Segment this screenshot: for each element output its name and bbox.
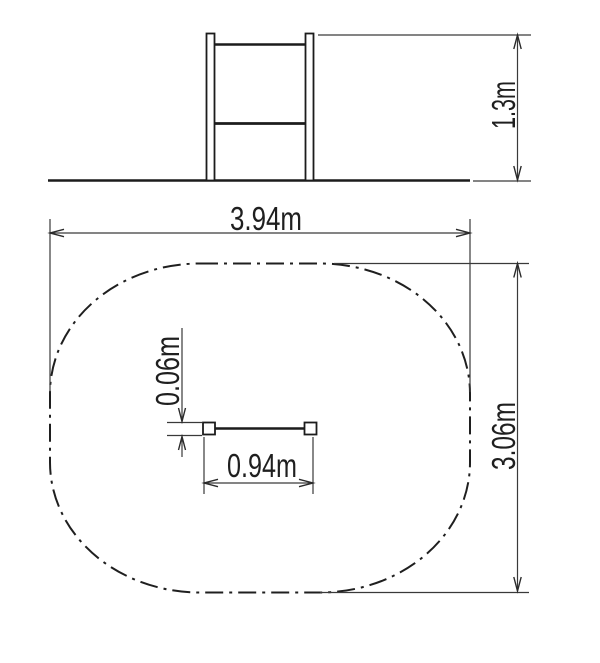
- dimension-bar-width-label: 0.06m: [149, 336, 186, 406]
- plan-left-post: [203, 423, 215, 435]
- elevation-right-post: [306, 34, 314, 181]
- dimension-bar-length-label: 0.94m: [227, 447, 297, 484]
- dimension-zone-width: 3.94m: [50, 200, 470, 392]
- elevation-left-post: [207, 34, 215, 181]
- dimension-zone-width-label: 3.94m: [230, 200, 302, 237]
- technical-drawing-page: 1.3m 3.94m 3.06m: [0, 0, 600, 663]
- technical-drawing-canvas: 1.3m 3.94m 3.06m: [0, 0, 600, 663]
- dimension-bar-width: 0.06m: [149, 328, 202, 457]
- plan-right-post: [305, 423, 317, 435]
- plan-bar-assembly: [203, 423, 317, 435]
- dimension-zone-depth: 3.06m: [320, 264, 529, 593]
- plan-view: 3.94m 3.06m: [50, 200, 529, 593]
- dimension-height: 1.3m: [318, 35, 531, 181]
- dimension-height-label: 1.3m: [485, 81, 522, 129]
- dimension-bar-length: 0.94m: [204, 437, 313, 494]
- front-elevation-view: 1.3m: [48, 34, 531, 182]
- dimension-zone-depth-label: 3.06m: [485, 402, 522, 470]
